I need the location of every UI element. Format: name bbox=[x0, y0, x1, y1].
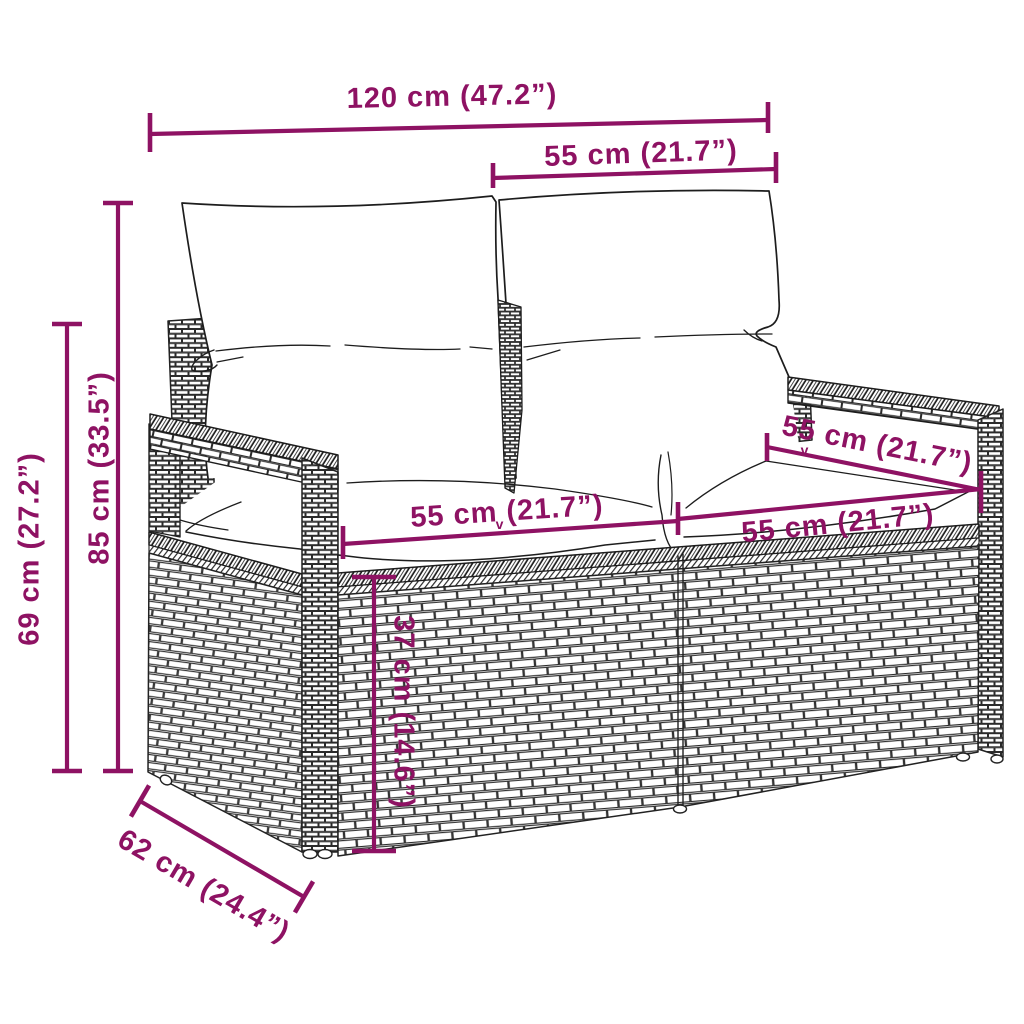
svg-text:85 cm (33.5”): 85 cm (33.5”) bbox=[84, 371, 116, 565]
svg-text:55 cm (21.7”): 55 cm (21.7”) bbox=[544, 134, 739, 173]
svg-text:120 cm (47.2”): 120 cm (47.2”) bbox=[346, 78, 557, 115]
svg-text:v: v bbox=[801, 442, 810, 458]
svg-text:69 cm (27.2”): 69 cm (27.2”) bbox=[14, 452, 46, 646]
svg-text:v: v bbox=[496, 516, 505, 532]
svg-text:37 cm (14.6”): 37 cm (14.6”) bbox=[387, 615, 419, 809]
